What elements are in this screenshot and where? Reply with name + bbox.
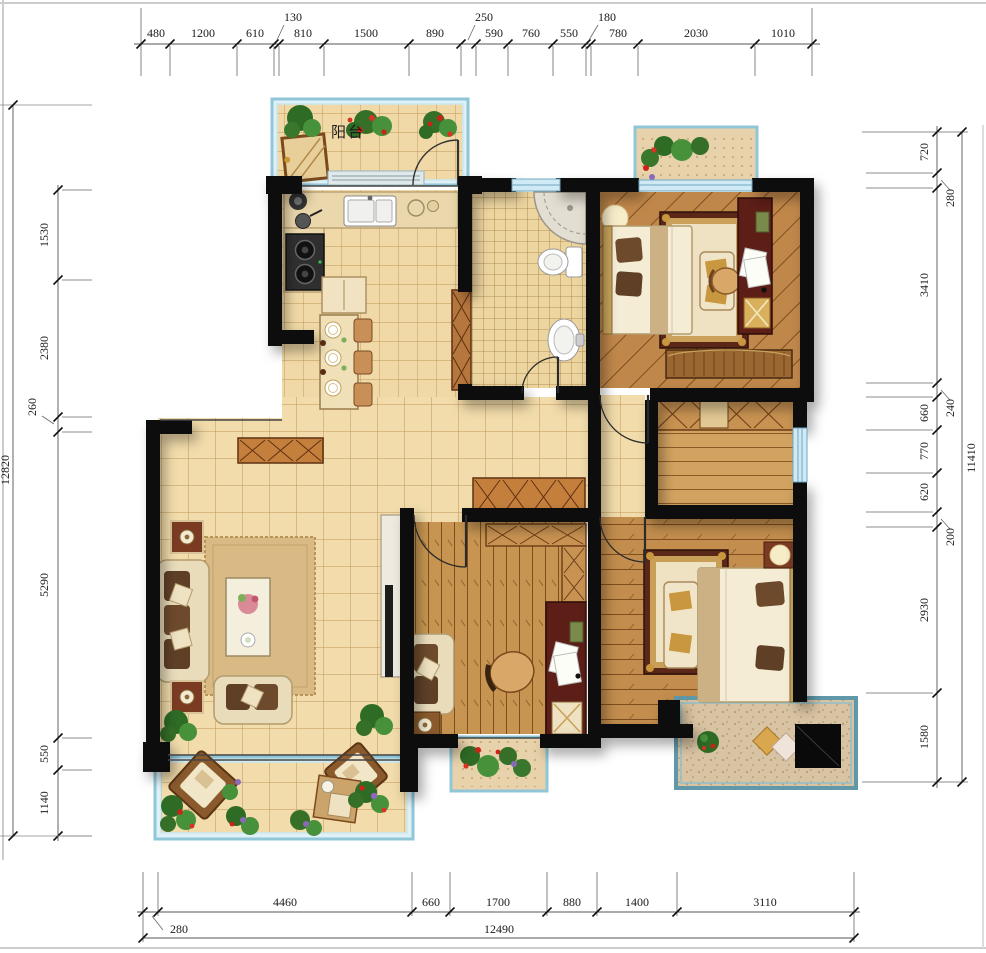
study-desk: [546, 602, 586, 738]
bowl-small: [428, 201, 439, 212]
dim-label: 660: [917, 404, 931, 422]
dim-label: 780: [609, 26, 627, 40]
dim-label: 1010: [771, 26, 795, 40]
dim-chain-bottom: 280 4460 660 1700 880 1400 3110 12490: [137, 872, 860, 943]
dim-total-bottom: 12490: [484, 922, 514, 936]
loveseat: [214, 676, 292, 724]
balcony-bottom-left: [155, 742, 413, 839]
dim-label: 240: [943, 399, 957, 417]
balcony-planter-box: [282, 134, 328, 182]
bathroom-window: [512, 179, 560, 191]
dim-label: 1530: [37, 223, 51, 247]
bedroom1-chest: [666, 350, 792, 378]
dim-label: 760: [522, 26, 540, 40]
dim-label: 2380: [37, 336, 51, 360]
dim-chain-right: 720 280 3410 240 660 770 620 200 2930 15…: [862, 126, 978, 788]
dim-label: 5290: [37, 573, 51, 597]
desk-1: [738, 198, 772, 334]
toilet: [538, 247, 582, 277]
dim-label: 480: [147, 26, 165, 40]
dining-chair: [354, 383, 372, 406]
sofa-main: [157, 560, 209, 682]
dim-total-right: 11410: [964, 443, 978, 473]
side-table-2: [171, 681, 203, 713]
dining-chair: [354, 319, 372, 342]
dim-label: 880: [563, 895, 581, 909]
entry-threshold: [328, 171, 424, 185]
dim-label: 4460: [273, 895, 297, 909]
tv-screen: [385, 585, 393, 677]
dim-chain-left: 1530 2380 260 5290 550 1140 12820: [0, 101, 92, 842]
stove: [286, 234, 324, 290]
dining-chair: [354, 351, 372, 374]
dim-label: 1400: [625, 895, 649, 909]
pan: [296, 214, 311, 229]
study-sofa: [408, 634, 454, 714]
dim-label: 770: [917, 442, 931, 460]
balcony-mini-top-right: [635, 127, 757, 187]
bedroom1-window: [639, 180, 752, 191]
dim-label: 250: [475, 10, 493, 24]
dim-label: 1140: [37, 791, 51, 815]
bed-1: [603, 226, 692, 334]
side-table-1: [171, 521, 203, 553]
bedroom2-bench: [664, 582, 698, 668]
dim-label: 3410: [917, 273, 931, 297]
dim-label: 130: [284, 10, 302, 24]
kitchen-sink: [344, 196, 396, 226]
dim-label: 620: [917, 483, 931, 501]
dim-label: 660: [422, 895, 440, 909]
dim-label: 2930: [917, 598, 931, 622]
balcony-study-small: [451, 737, 547, 791]
dim-label: 3110: [753, 895, 777, 909]
dim-label: 550: [560, 26, 578, 40]
dim-label: 590: [485, 26, 503, 40]
dining-set: [320, 315, 372, 409]
bed-2: [698, 568, 799, 702]
dim-label: 260: [25, 398, 39, 416]
dim-label: 200: [943, 528, 957, 546]
bedside-lamp: [770, 545, 790, 565]
dim-label: 610: [246, 26, 264, 40]
dim-label: 1580: [917, 725, 931, 749]
balcony-label: 阳台: [331, 123, 365, 141]
balcony-top: 阳台: [272, 99, 468, 185]
dim-label: 280: [170, 922, 188, 936]
dim-label: 1200: [191, 26, 215, 40]
closet-floor: [658, 428, 793, 508]
dim-label: 180: [598, 10, 616, 24]
dim-label: 1700: [486, 895, 510, 909]
dim-label: 720: [917, 143, 931, 161]
wardrobe-shelf: [700, 400, 728, 428]
hall-console-cabinet: [452, 290, 471, 390]
potted-plant: [697, 731, 719, 753]
dim-label: 550: [37, 745, 51, 763]
balcony-bottom-right: [676, 698, 856, 788]
floor-plan-page: 阳台: [0, 0, 986, 953]
dim-label: 810: [294, 26, 312, 40]
dim-label: 1500: [354, 26, 378, 40]
tv-wall: [381, 515, 403, 677]
dim-chain-top: 480 1200 610 130 810 1500 890 250 590 76…: [134, 8, 820, 76]
dim-total-left: 12820: [0, 455, 12, 485]
floor-plan-drawing: 阳台: [0, 0, 986, 953]
shoe-cabinet: [238, 438, 323, 463]
coffee-table: [226, 578, 270, 656]
corridor-floor: [600, 395, 645, 520]
closet-room: [656, 398, 795, 430]
closet-window: [793, 428, 807, 482]
dim-label: 2030: [684, 26, 708, 40]
dim-label: 280: [943, 189, 957, 207]
dim-label: 890: [426, 26, 444, 40]
